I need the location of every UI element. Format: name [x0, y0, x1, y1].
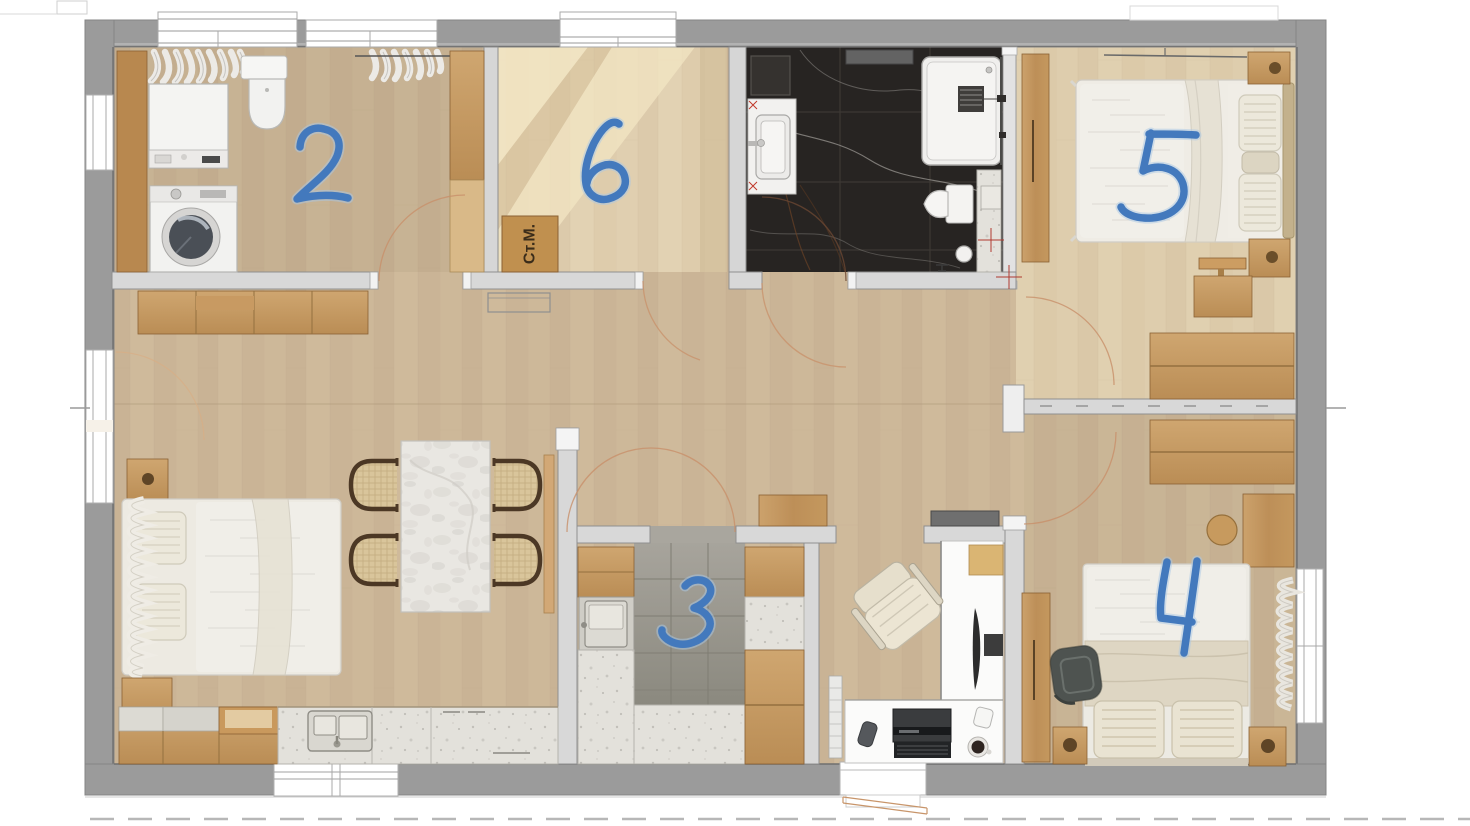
svg-text:Ст.М.: Ст.М.: [522, 224, 539, 264]
